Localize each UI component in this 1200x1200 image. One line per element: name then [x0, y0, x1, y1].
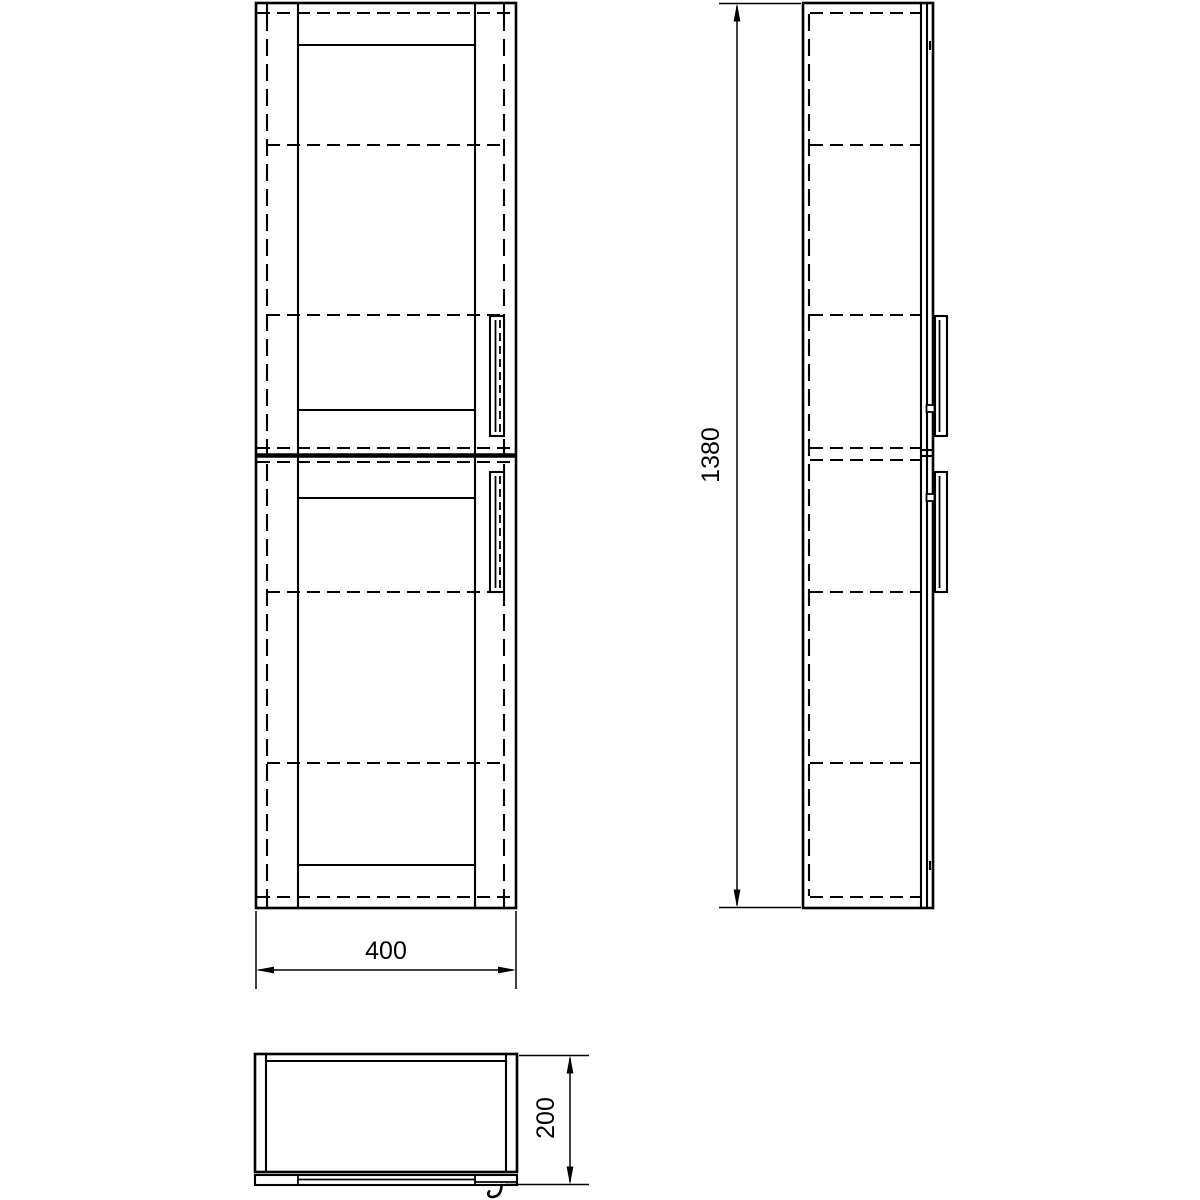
arrow-down — [567, 1167, 574, 1185]
arrow-down — [734, 890, 741, 908]
bottom-door-handle-side — [927, 472, 948, 592]
height-label: 1380 — [697, 427, 725, 483]
dimension-width: 400 — [256, 911, 516, 989]
width-label: 400 — [365, 937, 407, 965]
top-door-handle-front — [490, 316, 504, 436]
arrow-up — [567, 1056, 574, 1074]
arrow-right — [498, 967, 516, 974]
technical-drawing: 400 1380 200 — [0, 0, 1200, 1200]
cabinet-side-outline — [803, 3, 933, 908]
top-view — [255, 1054, 517, 1197]
side-view — [803, 3, 947, 908]
top-door-handle-side — [927, 316, 948, 436]
depth-label: 200 — [532, 1097, 560, 1139]
cabinet-plan-outline — [255, 1054, 517, 1172]
front-view — [256, 3, 516, 908]
arrow-up — [734, 4, 741, 22]
arrow-left — [256, 967, 274, 974]
bottom-door-handle-front — [490, 472, 504, 592]
dimension-height: 1380 — [697, 4, 801, 908]
plan-handle-hook — [488, 1185, 501, 1197]
